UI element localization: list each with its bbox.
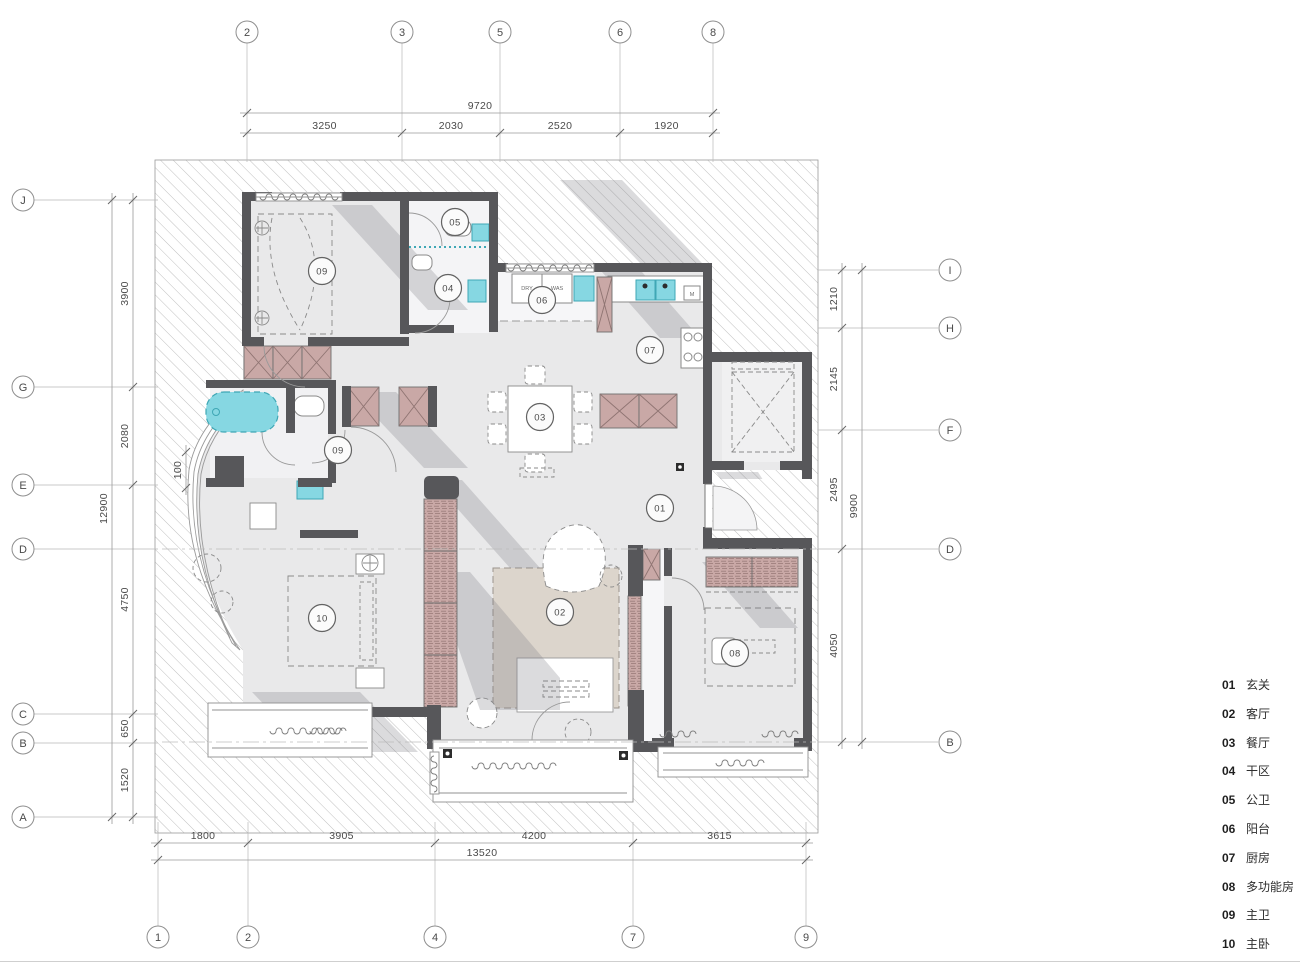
svg-text:03: 03 xyxy=(534,412,546,423)
mf-bay-window xyxy=(658,747,808,777)
svg-text:1800: 1800 xyxy=(191,830,216,842)
toilet xyxy=(412,255,432,270)
chair xyxy=(525,454,545,472)
kitchen-sink xyxy=(636,280,655,300)
svg-text:2145: 2145 xyxy=(828,367,840,392)
svg-text:1920: 1920 xyxy=(654,120,679,132)
legend-number: 02 xyxy=(1222,707,1246,721)
svg-text:4750: 4750 xyxy=(119,587,131,612)
svg-text:7: 7 xyxy=(630,932,636,944)
legend-row-08: 08多功能房 xyxy=(1222,878,1294,895)
svg-text:C: C xyxy=(19,709,27,721)
legend-row-05: 05公卫 xyxy=(1222,791,1270,808)
floor-plan-page: 2356812479JGEDCBAIHFDB 97203250203025201… xyxy=(0,0,1300,974)
svg-text:1520: 1520 xyxy=(119,768,131,793)
legend-row-02: 02客厅 xyxy=(1222,705,1270,722)
chair xyxy=(574,424,592,444)
vanity-counter xyxy=(215,456,244,485)
svg-text:2520: 2520 xyxy=(548,120,573,132)
bedroom-bay-window xyxy=(208,703,372,757)
svg-text:G: G xyxy=(19,382,28,394)
legend-room-name: 客厅 xyxy=(1246,707,1270,721)
elevator-floor xyxy=(722,362,802,462)
legend-room-name: 餐厅 xyxy=(1246,736,1270,750)
svg-text:100: 100 xyxy=(172,461,184,479)
legend-room-name: 干区 xyxy=(1246,764,1270,778)
svg-text:2: 2 xyxy=(245,932,251,944)
svg-text:01: 01 xyxy=(654,503,666,514)
svg-text:I: I xyxy=(948,265,951,277)
svg-text:3250: 3250 xyxy=(312,120,337,132)
svg-text:B: B xyxy=(19,738,26,750)
chair xyxy=(488,424,506,444)
svg-text:06: 06 xyxy=(536,295,548,306)
page-baseline-rule xyxy=(0,961,1300,962)
legend-room-name: 主卫 xyxy=(1246,908,1270,922)
svg-text:H: H xyxy=(946,323,954,335)
svg-text:3905: 3905 xyxy=(329,830,354,842)
svg-text:M: M xyxy=(690,292,695,298)
svg-text:12900: 12900 xyxy=(98,493,110,524)
legend-room-name: 厨房 xyxy=(1246,851,1270,865)
svg-text:B: B xyxy=(946,737,953,749)
legend-number: 04 xyxy=(1222,764,1246,778)
svg-text:9: 9 xyxy=(803,932,809,944)
svg-text:10: 10 xyxy=(316,613,328,624)
svg-text:WAS: WAS xyxy=(551,286,564,292)
svg-text:2030: 2030 xyxy=(439,120,464,132)
svg-text:2080: 2080 xyxy=(119,424,131,449)
legend-number: 03 xyxy=(1222,736,1246,750)
legend-row-07: 07厨房 xyxy=(1222,849,1270,866)
svg-text:8: 8 xyxy=(710,27,716,39)
svg-text:07: 07 xyxy=(644,345,656,356)
legend-row-04: 04干区 xyxy=(1222,762,1270,779)
svg-text:05: 05 xyxy=(449,217,461,228)
svg-text:08: 08 xyxy=(729,648,741,659)
legend-number: 09 xyxy=(1222,908,1246,922)
svg-text:9900: 9900 xyxy=(848,494,860,519)
svg-text:4050: 4050 xyxy=(828,633,840,658)
svg-text:6: 6 xyxy=(617,27,623,39)
bedroom-cabinet-row xyxy=(244,346,331,379)
toilet xyxy=(294,396,324,416)
legend-room-name: 阳台 xyxy=(1246,822,1270,836)
svg-text:A: A xyxy=(19,812,27,824)
svg-text:4200: 4200 xyxy=(522,830,547,842)
svg-text:5: 5 xyxy=(497,27,503,39)
legend-number: 07 xyxy=(1222,851,1246,865)
svg-text:02: 02 xyxy=(554,607,566,618)
svg-text:1210: 1210 xyxy=(828,287,840,312)
corridor-cabinet xyxy=(628,596,641,706)
nightstand xyxy=(356,668,384,688)
svg-text:2495: 2495 xyxy=(828,477,840,502)
svg-text:2: 2 xyxy=(244,27,250,39)
laundry-sink xyxy=(574,276,594,301)
legend-row-06: 06阳台 xyxy=(1222,820,1270,837)
svg-text:3900: 3900 xyxy=(119,281,131,306)
chair xyxy=(525,366,545,384)
svg-text:3: 3 xyxy=(399,27,405,39)
svg-text:1: 1 xyxy=(155,932,161,944)
floor-plan-drawing: 2356812479JGEDCBAIHFDB 97203250203025201… xyxy=(0,0,1300,974)
svg-text:09: 09 xyxy=(332,445,344,456)
basin xyxy=(468,280,486,302)
svg-text:650: 650 xyxy=(119,719,131,737)
chair xyxy=(488,392,506,412)
legend-number: 10 xyxy=(1222,937,1246,951)
legend-row-01: 01玄关 xyxy=(1222,676,1270,693)
svg-text:D: D xyxy=(19,544,27,556)
legend-row-09: 09主卫 xyxy=(1222,906,1270,923)
svg-text:09: 09 xyxy=(316,266,328,277)
svg-text:F: F xyxy=(947,425,954,437)
legend-number: 01 xyxy=(1222,678,1246,692)
cooktop xyxy=(681,328,705,368)
svg-text:DRY: DRY xyxy=(521,286,533,292)
stool xyxy=(250,503,276,529)
svg-text:13520: 13520 xyxy=(467,847,498,859)
legend-row-10: 10主卧 xyxy=(1222,935,1270,952)
svg-text:D: D xyxy=(946,544,954,556)
svg-text:04: 04 xyxy=(442,283,454,294)
legend-row-03: 03餐厅 xyxy=(1222,734,1270,751)
legend-room-name: 公卫 xyxy=(1246,793,1270,807)
legend-room-name: 多功能房 xyxy=(1246,880,1294,894)
svg-text:E: E xyxy=(19,480,26,492)
legend-number: 05 xyxy=(1222,793,1246,807)
chair xyxy=(574,392,592,412)
bathtub xyxy=(206,392,278,432)
legend-room-name: 玄关 xyxy=(1246,678,1270,692)
legend-number: 06 xyxy=(1222,822,1246,836)
svg-text:9720: 9720 xyxy=(468,100,493,112)
legend-number: 08 xyxy=(1222,880,1246,894)
kitchen-sink xyxy=(656,280,675,300)
shower-tray xyxy=(472,224,489,241)
legend-room-name: 主卧 xyxy=(1246,937,1270,951)
svg-text:3615: 3615 xyxy=(707,830,732,842)
room-legend: 01玄关02客厅03餐厅04干区05公卫06阳台07厨房08多功能房09主卫10… xyxy=(1210,0,1300,974)
svg-text:4: 4 xyxy=(432,932,438,944)
svg-text:J: J xyxy=(20,195,26,207)
